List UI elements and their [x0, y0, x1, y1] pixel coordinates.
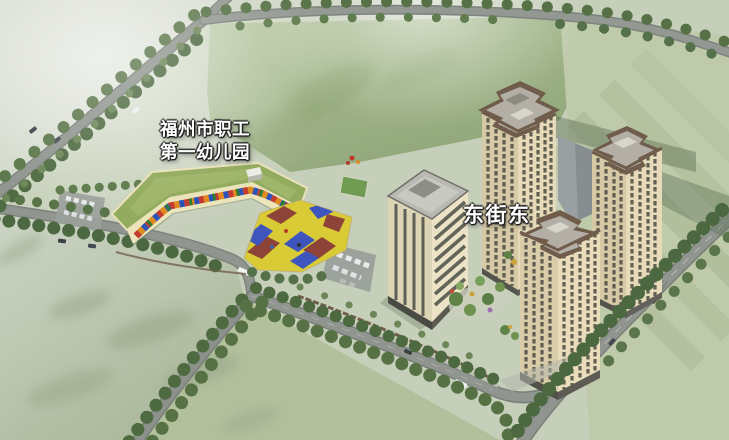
kindergarten-label: 福州市职工 第一幼儿园 [160, 119, 250, 165]
haze-overlay [0, 0, 340, 210]
rendering-canvas [0, 0, 729, 440]
street-label: 东街东 [463, 199, 531, 229]
aerial-rendering: 福州市职工 第一幼儿园 东街东 [0, 0, 729, 440]
kindergarten-label-line2: 第一幼儿园 [160, 142, 250, 165]
kindergarten-label-line1: 福州市职工 [160, 119, 250, 142]
residential-tower-back-right [592, 126, 662, 318]
